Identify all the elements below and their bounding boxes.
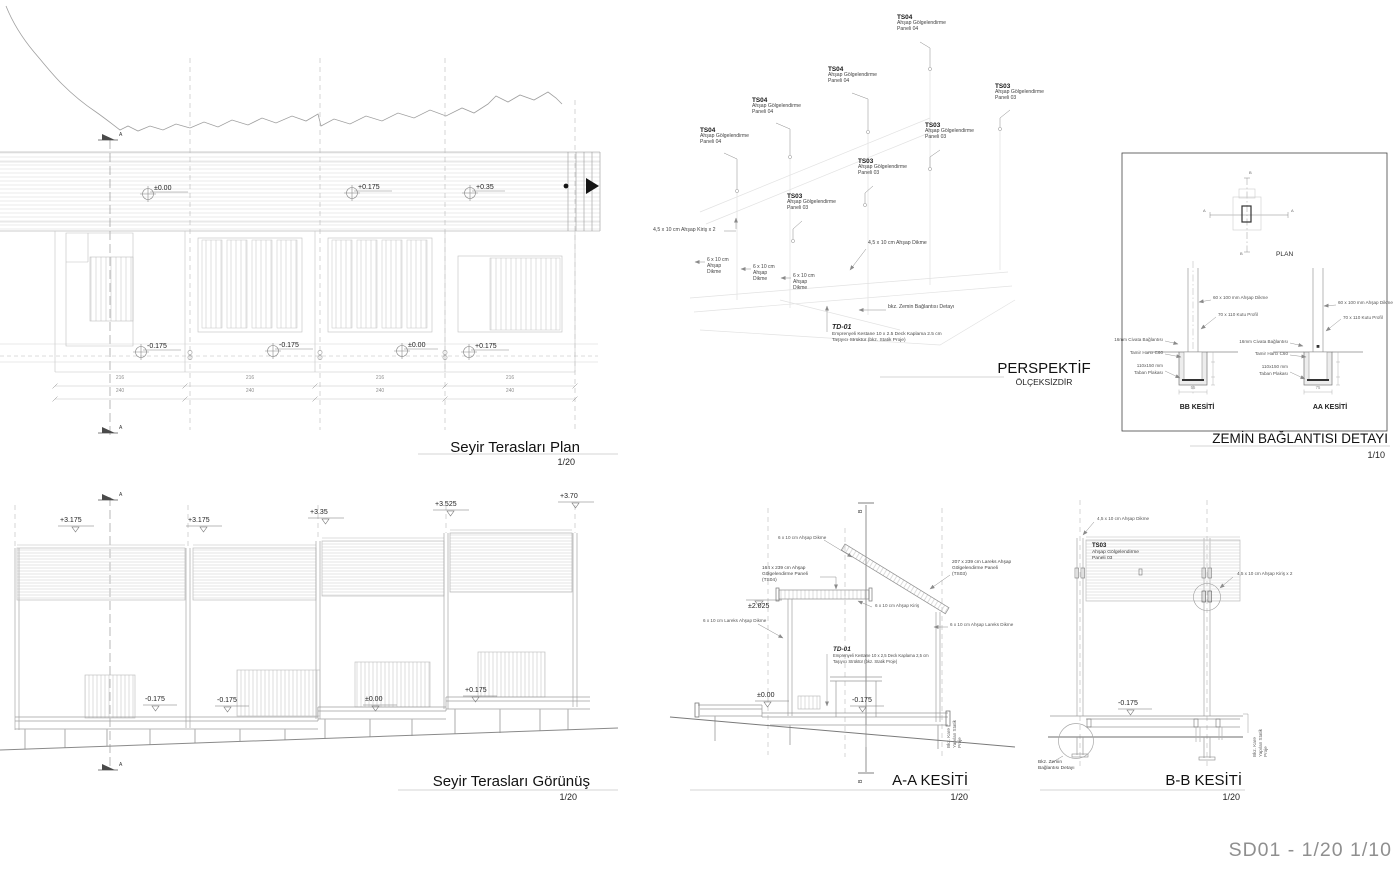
aa-section-b-top: B <box>859 510 865 513</box>
note-line: 207 x 239 cm Lareks Ahşap <box>952 560 1011 566</box>
elev-level-top-3: +3.35 <box>310 509 328 517</box>
elev-level-top-1: +3.175 <box>60 517 82 525</box>
elev-level-bottom-1: -0.175 <box>145 696 165 704</box>
note-line: Dikme <box>753 276 775 282</box>
note-line: (TS04) <box>762 578 808 584</box>
note-line: (TS03) <box>952 572 1011 578</box>
section-aa-scale: 1/20 <box>950 792 968 802</box>
persp-zemin-ref-note: bkz. Zemin Bağlantısı Detayı <box>888 305 954 311</box>
elev-level-bottom-4: +0.175 <box>465 687 487 695</box>
td01-line: Taşıyıcı Strüktür (bkz. Statik Proje) <box>833 659 929 664</box>
elev-section-flag-top: A <box>119 493 122 499</box>
callout-ts04: TS04 Ahşap Gölgelendirme Paneli 04 <box>897 14 946 33</box>
elev-level-top-2: +3.175 <box>188 517 210 525</box>
callout-line: Paneli 04 <box>828 79 877 85</box>
detail-axis-a-left: A <box>1203 209 1206 214</box>
plan-level-bottom-1: -0.175 <box>147 343 167 351</box>
detail-axis-a-right: A <box>1291 209 1294 214</box>
detail-ann-civata-bb: 16mm Civata Bağlantısı <box>1114 337 1163 342</box>
aa-td01-note: TD-01 Emprenyeli Kestane 10 x 2,5 Deck K… <box>833 646 929 664</box>
callout-ts03: TS03 Ahşap Gölgelendirme Paneli 03 <box>925 122 974 141</box>
callout-line: Paneli 04 <box>752 110 801 116</box>
note-line: Dikme <box>707 269 729 275</box>
td01-code: TD-01 <box>833 646 929 653</box>
plan-level-bottom-4: +0.175 <box>475 343 497 351</box>
detail-title: ZEMİN BAĞLANTISI DETAYI <box>1212 431 1388 447</box>
plan-section-flag-bottom: A <box>119 426 122 432</box>
detail-axis-b-bottom: B <box>1240 252 1243 257</box>
sheet-code: SD01 - 1/20 1/10 <box>1229 839 1392 861</box>
persp-kiris-note: 4,5 x 10 cm Ahşap Kiriş x 2 <box>653 228 716 234</box>
td01-code: TD-01 <box>832 324 942 332</box>
detail-bb-label: BB KESİTİ <box>1180 404 1215 412</box>
detail-ann-civata-aa: 16mm Civata Bağlantısı <box>1239 339 1288 344</box>
td01-line: Emprenyeli Kestane 10 x 2,5 Deck Kaplama… <box>833 653 929 658</box>
aa-ann-lareks-left: 6 x 10 cm Lareks Ahşap Dikme <box>703 618 766 623</box>
section-aa-title: A-A KESİTİ <box>892 772 968 789</box>
plan-level-top-2: +0.175 <box>358 184 380 192</box>
elev-level-top-4: +3.525 <box>435 501 457 509</box>
callout-line: Paneli 03 <box>858 171 907 177</box>
elev-level-bottom-2: -0.175 <box>217 697 237 705</box>
note-line: 164 x 239 cm Ahşap <box>762 566 808 572</box>
callout-ts04: TS04 Ahşap Gölgelendirme Paneli 04 <box>700 127 749 146</box>
detail-ann-harc-aa: Tamir Harcı C60 <box>1255 351 1288 356</box>
persp-td01-note: TD-01 Emprenyeli Kestane 10 x 2.5 Deck K… <box>832 324 942 344</box>
plan-level-bottom-3: ±0.00 <box>408 342 425 350</box>
aa-panel-ts03-note: 207 x 239 cm Lareks Ahşap Gölgelendirme … <box>952 560 1011 578</box>
elevation-linework <box>0 494 618 790</box>
section-bb-linework <box>1040 500 1248 790</box>
aa-level-0175: -0.175 <box>852 697 872 705</box>
aa-ann-dikme-top: 6 x 10 cm Ahşap Dikme <box>778 535 826 540</box>
persp-dikme-note: 6 x 10 cm Ahşap Dikme <box>793 273 815 291</box>
callout-ts04: TS04 Ahşap Gölgelendirme Paneli 04 <box>828 66 877 85</box>
callout-line: Paneli 04 <box>897 27 946 33</box>
callout-line: Paneli 04 <box>700 140 749 146</box>
callout-line: Paneli 03 <box>1092 556 1139 562</box>
bb-ann-kiris: 4,5 x 10 cm Ahşap Kiriş x 2 <box>1237 571 1292 576</box>
persp-dikme45-note: 4,5 x 10 cm Ahşap Dikme <box>868 241 927 247</box>
aa-level-000: ±0.00 <box>757 692 774 700</box>
plan-scale: 1/20 <box>557 457 575 467</box>
detail-ann-plaka-bb: 110x150 mm <box>1137 363 1163 368</box>
aa-level-2025: ±2.025 <box>748 603 769 611</box>
detail-ann-harc-bb: Tamir Harcı C60 <box>1130 350 1163 355</box>
detail-dim-bb: 55 <box>1191 386 1196 391</box>
callout-line: Paneli 03 <box>787 206 836 212</box>
aa-ann-kiris: 6 x 10 cm Ahşap Kiriş <box>875 603 919 608</box>
callout-code: TS03 <box>1092 543 1139 550</box>
detail-ann-profil-aa: 70 x 110 Kutu Profil <box>1343 315 1383 320</box>
detail-dim-aa: 75 <box>1316 386 1321 391</box>
plan-dim: 240 <box>246 389 254 395</box>
perspective-subtitle: ÖLÇEKSİZDİR <box>1016 378 1073 388</box>
elev-level-top-5: +3.70 <box>560 493 578 501</box>
drawing-sheet: ±0.00 +0.175 +0.35 -0.175 -0.175 ±0.00 +… <box>0 0 1400 869</box>
plan-section-flag-top: A <box>119 133 122 139</box>
elev-section-flag-bottom: A <box>119 763 122 769</box>
callout-ts03: TS03 Ahşap Gölgelendirme Paneli 03 <box>858 158 907 177</box>
note-line: Proje <box>957 720 963 748</box>
detail-ann-plaka-aa: Taban Plakası <box>1259 371 1288 376</box>
callout-line: Paneli 03 <box>995 96 1044 102</box>
plan-dim: 240 <box>116 389 124 395</box>
plan-dim: 216 <box>246 376 254 382</box>
bb-detail-ref-note: Bkz. Zemin Bağlantısı Detayı <box>1038 760 1075 772</box>
detail-ann-dikme-bb: 60 x 100 mm Ahşap Dikme <box>1213 295 1268 300</box>
aa-panel-ts04-note: 164 x 239 cm Ahşap Gölgelendirme Paneli … <box>762 566 808 584</box>
plan-title: Seyir Terasları Plan <box>450 439 580 456</box>
plan-level-top-3: +0.35 <box>476 184 494 192</box>
detail-ann-dikme-aa: 60 x 100 mm Ahşap Dikme <box>1338 300 1393 305</box>
callout-line: Paneli 03 <box>925 135 974 141</box>
detail-plan-label: PLAN <box>1276 251 1293 259</box>
note-line: Dikme <box>793 285 815 291</box>
section-bb-scale: 1/20 <box>1222 792 1240 802</box>
plan-dim: 240 <box>376 389 384 395</box>
callout-ts03: TS03 Ahşap Gölgelendirme Paneli 03 <box>995 83 1044 102</box>
section-bb-title: B-B KESİTİ <box>1165 772 1242 789</box>
detail-ann-profil-bb: 70 x 110 Kutu Profil <box>1218 312 1258 317</box>
elevation-title: Seyir Terasları Görünüş <box>433 773 590 790</box>
bb-ts03-note: TS03 Ahşap Gölgelendirme Paneli 03 <box>1092 543 1139 561</box>
detail-ann-plaka-aa: 110x150 mm <box>1262 364 1288 369</box>
plan-dim: 216 <box>506 376 514 382</box>
plan-dim: 216 <box>376 376 384 382</box>
callout-line: Ahşap Gölgelendirme <box>1092 550 1139 556</box>
persp-dikme-note: 6 x 10 cm Ahşap Dikme <box>753 264 775 282</box>
detail-ann-plaka-bb: Taban Plakası <box>1134 370 1163 375</box>
persp-dikme-note: 6 x 10 cm Ahşap Dikme <box>707 257 729 275</box>
note-line: Bağlantısı Detayı <box>1038 766 1075 772</box>
bb-vertical-note: Bkz. Kare Yapılan Statik Proje <box>1252 729 1269 757</box>
bb-level-0175: -0.175 <box>1118 700 1138 708</box>
note-line: Proje <box>1263 729 1269 757</box>
aa-ann-lareks-right: 6 x 10 cm Ahşap Lareks Dikme <box>950 622 1013 627</box>
plan-level-top-1: ±0.00 <box>154 185 171 193</box>
detail-aa-label: AA KESİTİ <box>1313 404 1347 412</box>
plan-dim: 216 <box>116 376 124 382</box>
elevation-scale: 1/20 <box>559 792 577 802</box>
bb-ann-dikme: 4,5 x 10 cm Ahşap Dikme <box>1097 516 1149 521</box>
detail-scale: 1/10 <box>1367 450 1385 460</box>
td01-line: Taşıyıcı Strüktür (bkz. Statik Proje) <box>832 338 942 344</box>
note-line: Gölgelendirme Paneli <box>762 572 808 578</box>
detail-axis-b-top: B <box>1249 171 1252 176</box>
plan-dim: 240 <box>506 389 514 395</box>
perspective-title: PERSPEKTİF <box>997 360 1090 377</box>
elev-level-bottom-3: ±0.00 <box>365 696 382 704</box>
aa-vertical-note: Bkz. Kare Yapılan Statik Proje <box>946 720 963 748</box>
callout-ts03: TS03 Ahşap Gölgelendirme Paneli 03 <box>787 193 836 212</box>
plan-level-bottom-2: -0.175 <box>279 342 299 350</box>
callout-ts04: TS04 Ahşap Gölgelendirme Paneli 04 <box>752 97 801 116</box>
plan-linework <box>0 6 618 454</box>
aa-section-b-bottom: B <box>859 780 865 783</box>
